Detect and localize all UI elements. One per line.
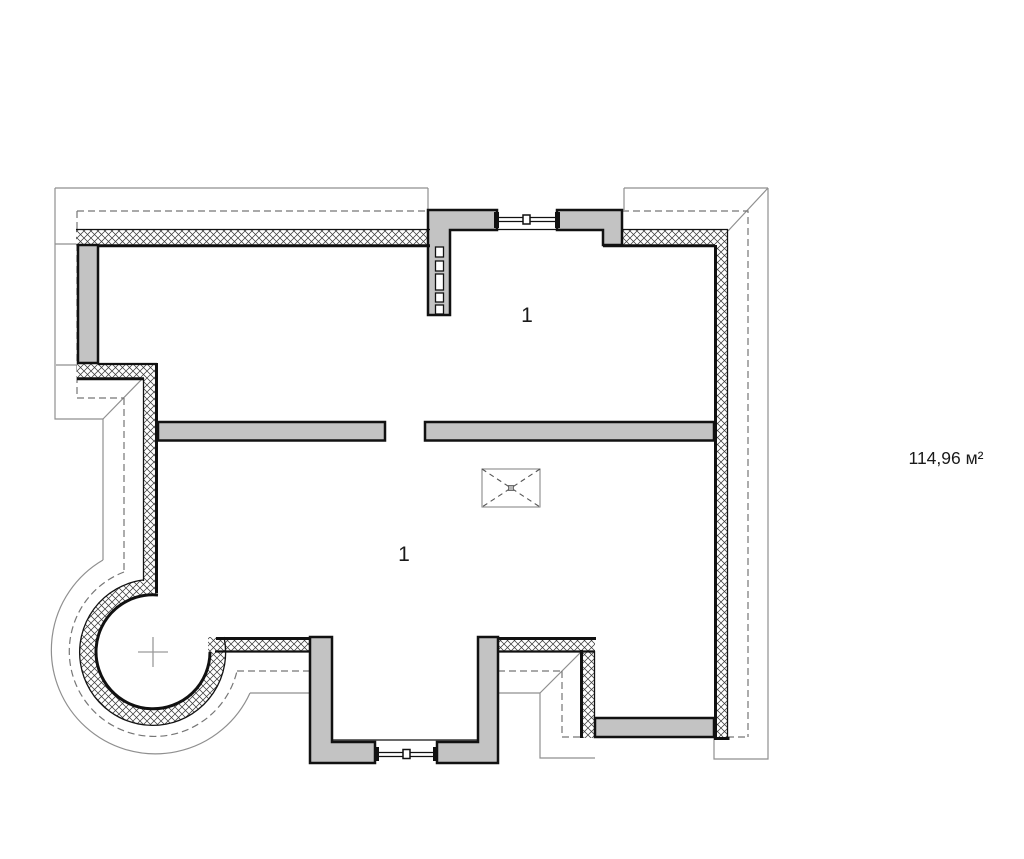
- floor-plan-drawing: 1 1 114,96 м²: [0, 0, 1024, 859]
- window-mullion: [403, 750, 410, 759]
- partition-left: [158, 422, 385, 441]
- wall-west-upper-gray: [78, 245, 98, 363]
- area-label: 114,96 м²: [909, 448, 984, 468]
- wall-north-left: [76, 229, 430, 246]
- wall-west-jog: [77, 363, 158, 379]
- partition-right: [425, 422, 714, 441]
- window-mullion: [523, 215, 530, 224]
- room-label-bottom: 1: [398, 543, 410, 566]
- wall-north-right: [622, 229, 728, 246]
- floor-plan-canvas: 1 1 114,96 м²: [0, 0, 1024, 859]
- room-label-top: 1: [521, 304, 533, 327]
- shaft-symbol: [482, 469, 540, 507]
- wall-south-east-gray: [595, 718, 714, 737]
